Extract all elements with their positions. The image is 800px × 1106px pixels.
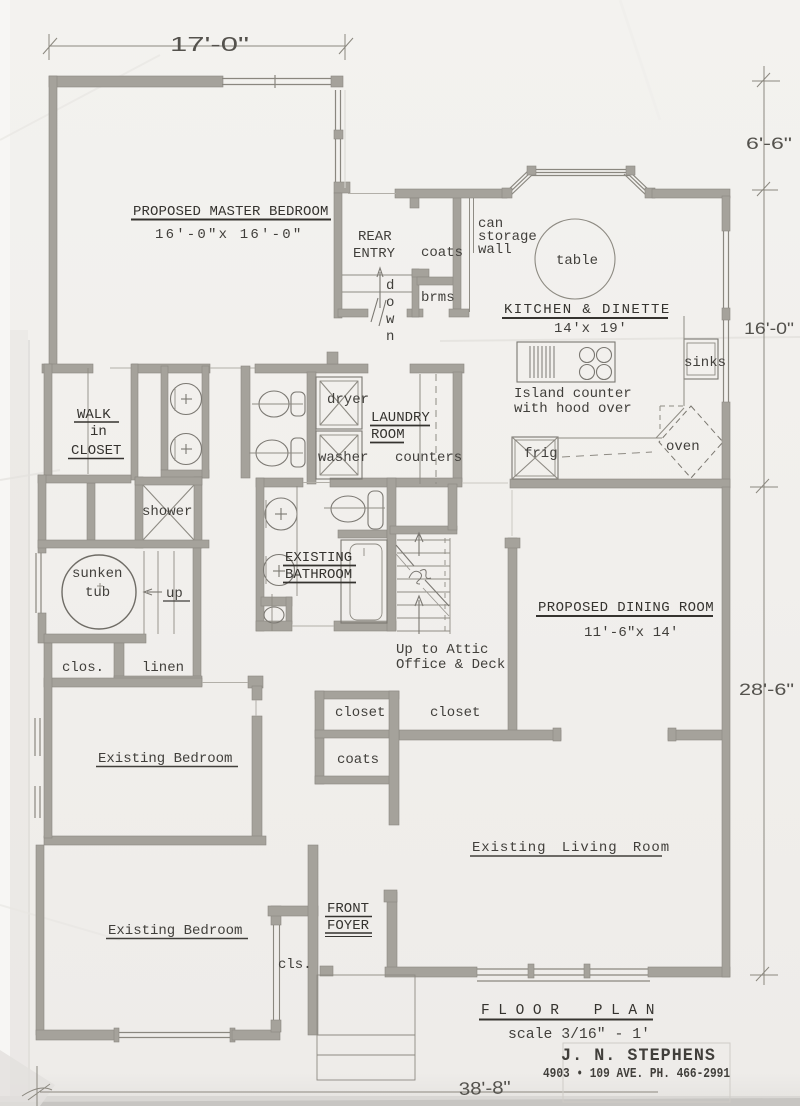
svg-text:BATHROOM: BATHROOM <box>285 567 352 583</box>
svg-text:linen: linen <box>142 660 184 676</box>
svg-text:with hood over: with hood over <box>514 401 632 417</box>
svg-text:brms: brms <box>421 290 455 306</box>
svg-text:16'-0": 16'-0" <box>744 319 794 338</box>
svg-text:sinks: sinks <box>684 355 726 371</box>
svg-text:28'-6": 28'-6" <box>739 680 794 699</box>
svg-text:closet: closet <box>430 705 480 721</box>
svg-text:PROPOSED DINING ROOM: PROPOSED DINING ROOM <box>538 600 714 616</box>
svg-text:11'-6"x 14': 11'-6"x 14' <box>584 625 679 641</box>
svg-text:o: o <box>386 295 394 311</box>
svg-text:REAR: REAR <box>358 229 392 245</box>
svg-text:17'-0": 17'-0" <box>170 34 249 56</box>
svg-text:4903 • 109 AVE. PH. 466-2991: 4903 • 109 AVE. PH. 466-2991 <box>543 1067 730 1082</box>
svg-text:wall: wall <box>478 242 512 258</box>
svg-text:16'-0"x 16'-0": 16'-0"x 16'-0" <box>155 227 303 243</box>
svg-text:up: up <box>166 586 183 602</box>
svg-text:oven: oven <box>666 439 700 455</box>
svg-text:FRONT: FRONT <box>327 901 369 917</box>
svg-text:coats: coats <box>421 245 463 261</box>
svg-text:WALK: WALK <box>77 407 111 423</box>
svg-text:Existing Bedroom: Existing Bedroom <box>108 923 242 939</box>
svg-text:38'-8": 38'-8" <box>458 1077 511 1099</box>
svg-text:dryer: dryer <box>327 392 369 408</box>
svg-text:table: table <box>556 253 598 269</box>
svg-text:in: in <box>90 424 107 440</box>
svg-text:clos.: clos. <box>62 660 104 676</box>
svg-text:KITCHEN & DINETTE: KITCHEN & DINETTE <box>504 302 671 318</box>
svg-text:EXISTING: EXISTING <box>285 550 352 566</box>
svg-text:FOYER: FOYER <box>327 918 370 934</box>
svg-text:Office & Deck: Office & Deck <box>396 657 505 673</box>
svg-text:LAUNDRY: LAUNDRY <box>371 410 430 426</box>
svg-text:14'x 19': 14'x 19' <box>554 321 628 337</box>
svg-text:n: n <box>386 329 394 345</box>
svg-text:CLOSET: CLOSET <box>71 443 121 459</box>
svg-text:6'-6": 6'-6" <box>746 134 792 153</box>
svg-text:w: w <box>386 312 395 328</box>
svg-text:Existing Living Room: Existing Living Room <box>472 840 670 856</box>
svg-text:sunken: sunken <box>72 566 122 582</box>
svg-text:scale 3/16" - 1': scale 3/16" - 1' <box>508 1027 650 1043</box>
svg-text:Up to Attic: Up to Attic <box>396 642 488 658</box>
svg-text:tub: tub <box>85 585 110 601</box>
svg-text:d: d <box>386 278 394 294</box>
svg-text:FLOOR PLAN: FLOOR PLAN <box>481 1003 663 1019</box>
svg-text:frig: frig <box>524 446 558 462</box>
svg-text:coats: coats <box>337 752 379 768</box>
svg-text:shower: shower <box>142 504 192 520</box>
svg-text:ENTRY: ENTRY <box>353 246 396 262</box>
svg-text:Island counter: Island counter <box>514 386 632 402</box>
svg-text:closet: closet <box>335 705 385 721</box>
svg-text:counters: counters <box>395 450 462 466</box>
svg-text:PROPOSED MASTER BEDROOM: PROPOSED MASTER BEDROOM <box>133 204 329 220</box>
svg-text:cls.: cls. <box>278 957 312 973</box>
svg-text:Existing Bedroom: Existing Bedroom <box>98 751 232 767</box>
svg-text:washer: washer <box>318 450 368 466</box>
svg-text:ROOM: ROOM <box>371 427 405 443</box>
svg-text:J. N. STEPHENS: J. N. STEPHENS <box>561 1046 716 1066</box>
